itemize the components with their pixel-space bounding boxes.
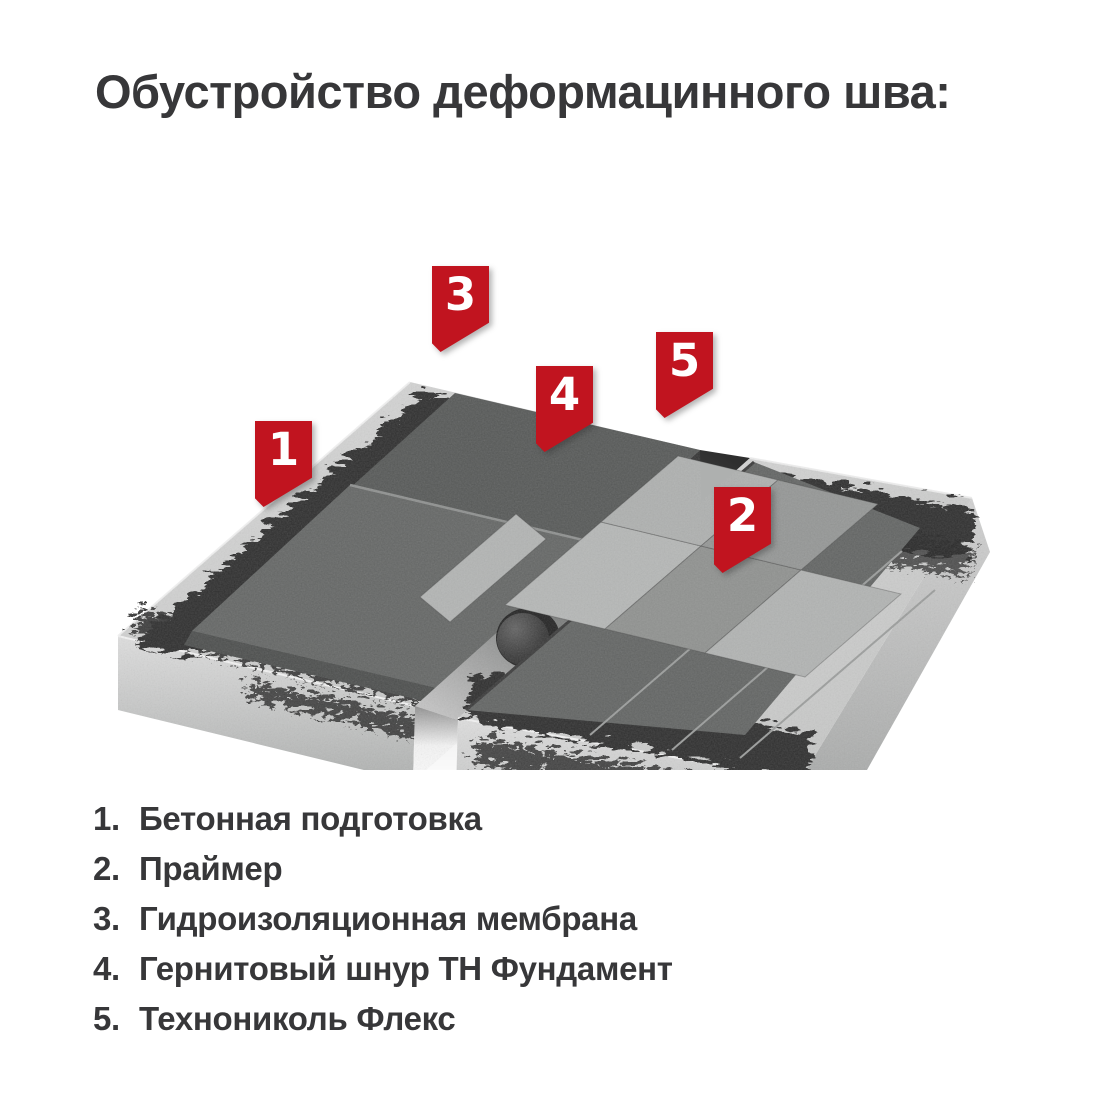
diagram-scene: 1 2 3 4 5 bbox=[0, 150, 1100, 770]
marker-3-number: 3 bbox=[445, 266, 476, 323]
marker-3: 3 bbox=[432, 266, 489, 352]
expansion-joint-illustration bbox=[0, 150, 1100, 770]
legend-item-5-label: Технониколь Флекс bbox=[139, 1000, 456, 1038]
legend-item-1: 1. Бетонная подготовка bbox=[93, 800, 673, 850]
legend: 1. Бетонная подготовка 2. Праймер 3. Гид… bbox=[93, 800, 673, 1050]
legend-item-5-number: 5. bbox=[93, 1000, 137, 1038]
legend-item-4-number: 4. bbox=[93, 950, 137, 988]
marker-5: 5 bbox=[656, 332, 713, 418]
legend-item-2: 2. Праймер bbox=[93, 850, 673, 900]
marker-4-pin: 4 bbox=[536, 366, 593, 452]
marker-1-number: 1 bbox=[268, 421, 299, 478]
page-title: Обустройство деформацинного шва: bbox=[95, 64, 950, 119]
legend-item-2-number: 2. bbox=[93, 850, 137, 888]
legend-item-1-label: Бетонная подготовка bbox=[139, 800, 482, 838]
infographic-root: Обустройство деформацинного шва: bbox=[0, 0, 1100, 1100]
legend-item-3: 3. Гидроизоляционная мембрана bbox=[93, 900, 673, 950]
legend-item-3-number: 3. bbox=[93, 900, 137, 938]
legend-item-2-label: Праймер bbox=[139, 850, 282, 888]
legend-item-1-number: 1. bbox=[93, 800, 137, 838]
marker-2: 2 bbox=[714, 487, 771, 573]
legend-item-3-label: Гидроизоляционная мембрана bbox=[139, 900, 637, 938]
marker-4-number: 4 bbox=[549, 366, 580, 423]
legend-item-4-label: Гернитовый шнур ТН Фундамент bbox=[139, 950, 673, 988]
marker-4: 4 bbox=[536, 366, 593, 452]
marker-3-pin: 3 bbox=[432, 266, 489, 352]
legend-item-4: 4. Гернитовый шнур ТН Фундамент bbox=[93, 950, 673, 1000]
marker-5-pin: 5 bbox=[656, 332, 713, 418]
marker-2-number: 2 bbox=[727, 487, 758, 544]
marker-1-pin: 1 bbox=[255, 421, 312, 507]
marker-1: 1 bbox=[255, 421, 312, 507]
marker-2-pin: 2 bbox=[714, 487, 771, 573]
legend-item-5: 5. Технониколь Флекс bbox=[93, 1000, 673, 1050]
marker-5-number: 5 bbox=[669, 332, 700, 389]
